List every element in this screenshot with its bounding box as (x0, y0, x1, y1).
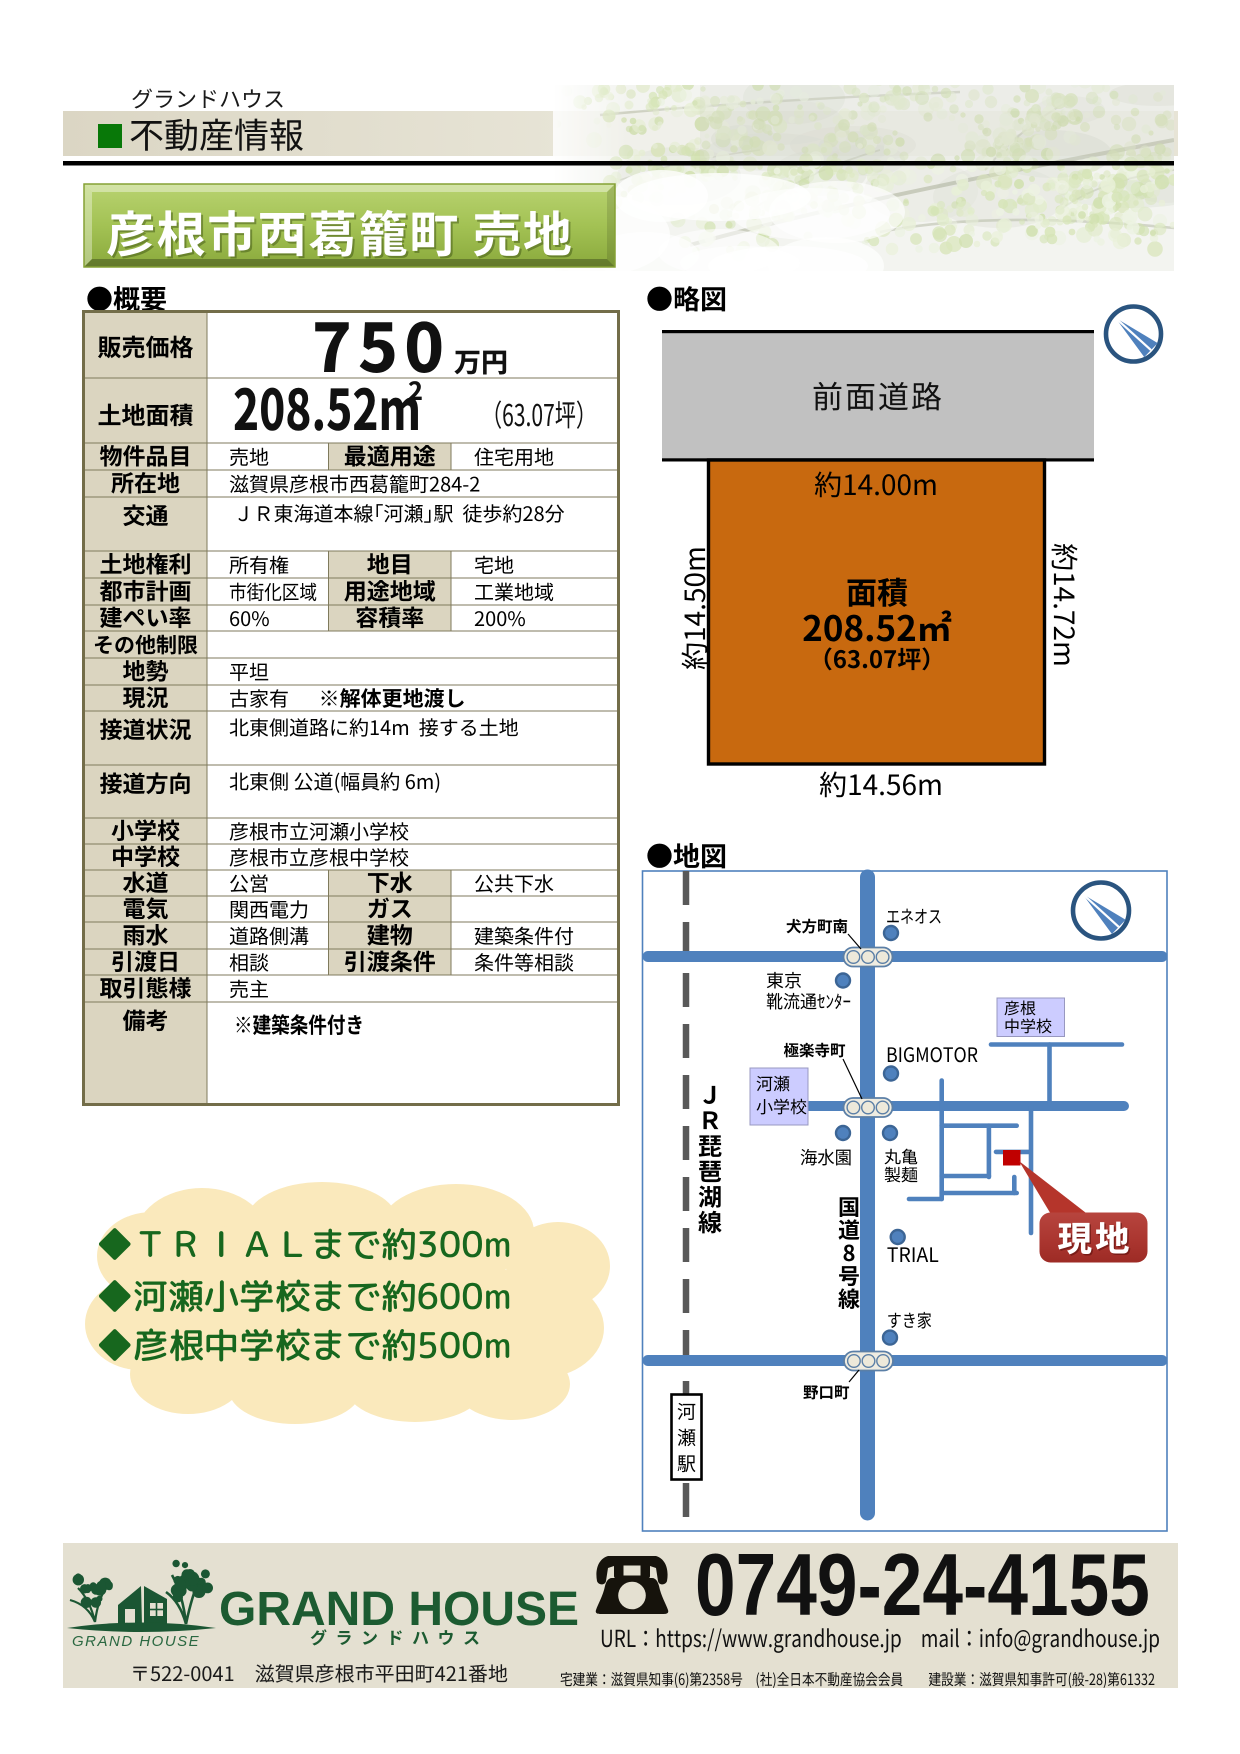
svg-text:GRAND HOUSE: GRAND HOUSE (219, 1583, 579, 1636)
svg-text:GRAND HOUSE: GRAND HOUSE (72, 1633, 200, 1650)
svg-text:0749-24-4155: 0749-24-4155 (695, 1537, 1150, 1635)
